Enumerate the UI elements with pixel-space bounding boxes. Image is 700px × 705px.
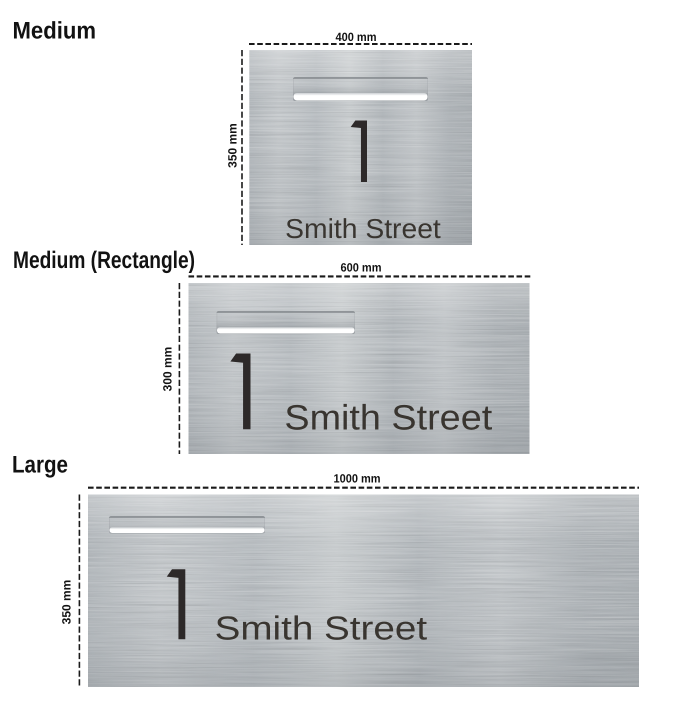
svg-text:Medium (Rectangle): Medium (Rectangle)	[13, 247, 195, 274]
svg-text:350 mm: 350 mm	[226, 123, 240, 168]
svg-text:Smith Street: Smith Street	[285, 213, 441, 244]
svg-text:Smith Street: Smith Street	[284, 398, 492, 437]
svg-text:Smith Street: Smith Street	[215, 610, 428, 647]
svg-text:Medium: Medium	[13, 17, 97, 44]
svg-text:350 mm: 350 mm	[60, 580, 74, 625]
svg-text:400 mm: 400 mm	[336, 30, 377, 44]
svg-text:Large: Large	[12, 452, 68, 479]
svg-text:300 mm: 300 mm	[161, 347, 175, 392]
svg-text:600 mm: 600 mm	[341, 261, 382, 275]
svg-text:1000 mm: 1000 mm	[334, 471, 381, 485]
